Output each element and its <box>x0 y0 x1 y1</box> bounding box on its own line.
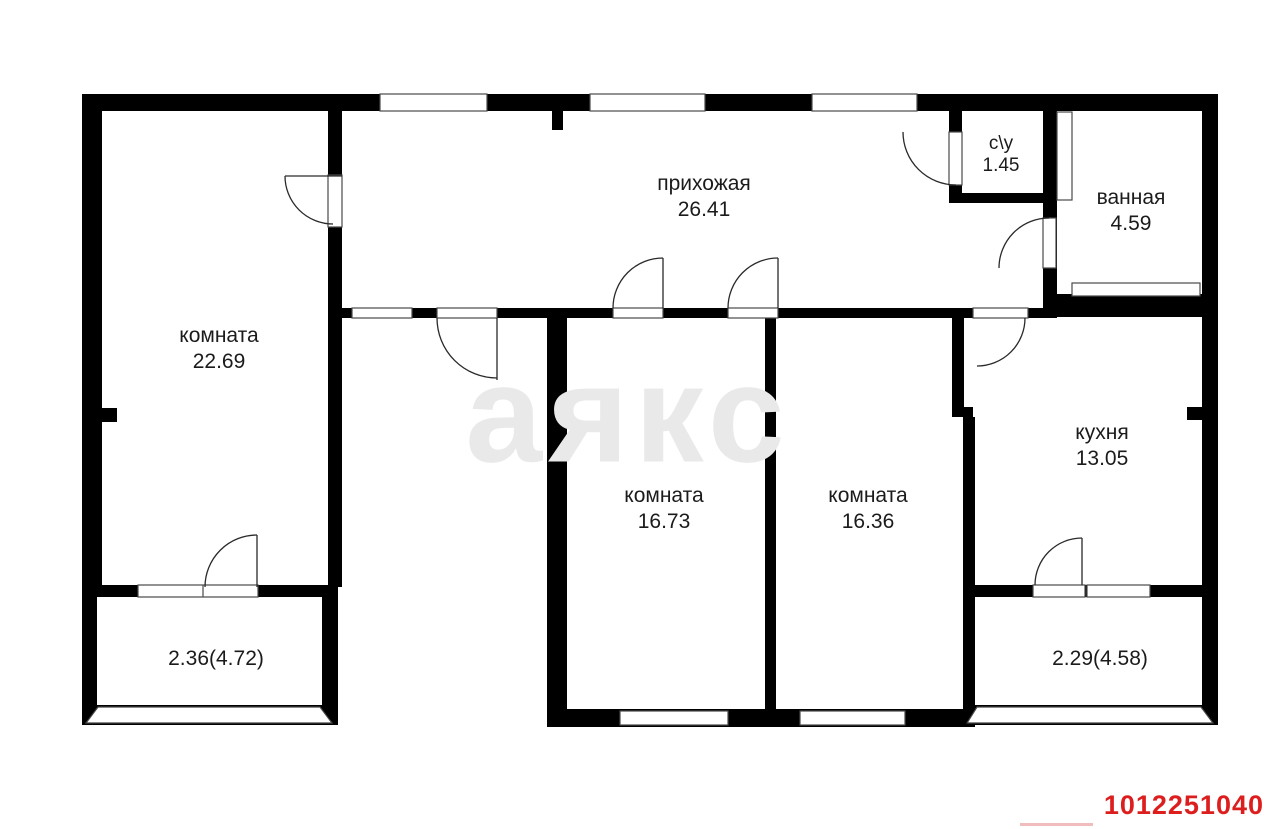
agency-watermark: аякс <box>465 336 790 495</box>
room-right-door-arc <box>728 258 778 308</box>
balcony-right-door-arc <box>1035 538 1082 585</box>
balcony-left-sill <box>138 585 258 597</box>
room-right-window <box>800 711 905 725</box>
room-name: кухня <box>1075 420 1128 446</box>
room-area: 1.45 <box>983 155 1020 177</box>
room-name: ванная <box>1097 185 1166 211</box>
room-name: комната <box>179 323 258 349</box>
room-area: 13.05 <box>1075 446 1128 472</box>
room-name: прихожая <box>657 171 751 197</box>
room-label-room-large: комната 22.69 <box>179 323 258 375</box>
window-top-1 <box>380 94 487 111</box>
window-top-3 <box>812 94 917 111</box>
room-large-door-leaf <box>328 175 342 227</box>
wc-door-leaf <box>949 132 962 185</box>
room-right-door-opening <box>728 308 778 318</box>
room-area: 26.41 <box>657 197 751 223</box>
balcony-right-door-sill <box>1033 585 1085 597</box>
room-area: 22.69 <box>179 349 258 375</box>
room-name: комната <box>624 483 703 509</box>
bathroom-ledge <box>1072 283 1200 296</box>
hallway-window <box>352 308 412 318</box>
room-label-balcony-left: 2.36(4.72) <box>168 646 264 672</box>
kitchen-door-opening <box>973 308 1028 318</box>
bathroom-door-arc <box>999 218 1049 268</box>
loggia-door-opening <box>437 308 497 318</box>
room-area: 2.29(4.58) <box>1052 646 1148 672</box>
room-label-room-right: комната 16.36 <box>828 483 907 535</box>
red-scan-artifact <box>1020 823 1093 826</box>
room-label-bathroom: ванная 4.59 <box>1097 185 1166 237</box>
vent-shaft <box>1057 112 1072 200</box>
balcony-right-window <box>1087 585 1150 597</box>
room-label-room-middle: комната 16.73 <box>624 483 703 535</box>
room-label-hallway: прихожая 26.41 <box>657 171 751 223</box>
balcony-left-parapet <box>86 707 332 723</box>
room-name: комната <box>828 483 907 509</box>
room-name: с\у <box>983 133 1020 155</box>
room-label-balcony-right: 2.29(4.58) <box>1052 646 1148 672</box>
room-large-door-arc <box>285 176 333 224</box>
room-middle-door-arc <box>613 258 663 308</box>
room-area: 16.73 <box>624 509 703 535</box>
room-middle-door-opening <box>613 308 663 318</box>
window-top-2 <box>590 94 705 111</box>
balcony-right-parapet <box>967 707 1213 723</box>
room-middle-window <box>620 711 728 725</box>
room-label-wc: с\у 1.45 <box>983 133 1020 177</box>
room-label-kitchen: кухня 13.05 <box>1075 420 1128 472</box>
kitchen-door-arc <box>977 318 1025 366</box>
room-area: 16.36 <box>828 509 907 535</box>
wc-door-arc <box>903 132 956 185</box>
listing-id: 1012251040 <box>1104 790 1264 821</box>
room-area: 4.59 <box>1097 211 1166 237</box>
balcony-left-door-arc <box>205 535 257 587</box>
bathroom-door-leaf <box>1043 218 1056 268</box>
floor-plan-page: аякс прихожая 26.41 комната 22.69 с\у 1.… <box>0 0 1280 829</box>
room-area: 2.36(4.72) <box>168 646 264 672</box>
